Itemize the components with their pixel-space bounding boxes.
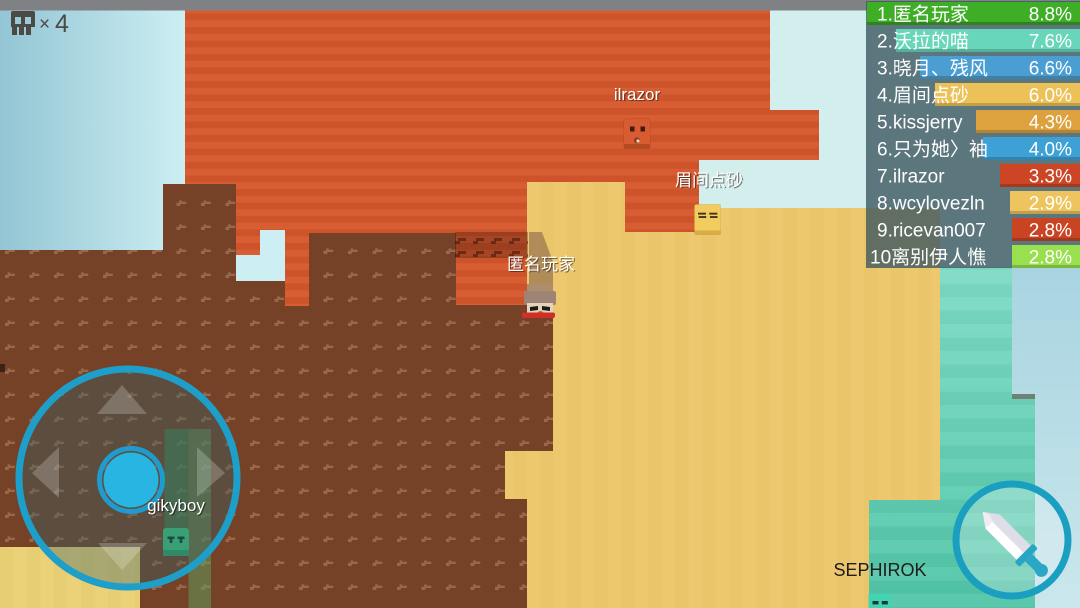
svg-text:×: ×: [39, 14, 50, 35]
svg-text:眉间点砂: 眉间点砂: [675, 171, 743, 190]
svg-text:6.只为她〉袖: 6.只为她〉袖: [877, 139, 988, 161]
svg-text:4.3%: 4.3%: [1029, 113, 1072, 134]
svg-text:10离别伊人憔: 10离别伊人憔: [870, 247, 986, 269]
svg-text:8.wcylovezln: 8.wcylovezln: [877, 194, 985, 215]
svg-text:4: 4: [55, 10, 69, 38]
svg-text:3.3%: 3.3%: [1029, 167, 1072, 188]
svg-text:8.8%: 8.8%: [1029, 5, 1072, 26]
svg-text:SEPHIROK: SEPHIROK: [833, 560, 926, 580]
svg-text:匿名玩家: 匿名玩家: [507, 255, 575, 274]
svg-text:gikyboy: gikyboy: [147, 496, 205, 515]
svg-text:2.8%: 2.8%: [1029, 248, 1072, 269]
svg-text:2.沃拉的喵: 2.沃拉的喵: [877, 31, 969, 53]
svg-text:4.0%: 4.0%: [1029, 140, 1072, 161]
svg-text:3.晓月、残风: 3.晓月、残风: [877, 58, 988, 80]
svg-text:ilrazor: ilrazor: [614, 85, 661, 104]
svg-text:1.匿名玩家: 1.匿名玩家: [877, 4, 969, 26]
svg-text:7.6%: 7.6%: [1029, 32, 1072, 53]
svg-text:7.ilrazor: 7.ilrazor: [877, 167, 945, 188]
svg-text:6.0%: 6.0%: [1029, 86, 1072, 107]
svg-text:2.9%: 2.9%: [1029, 194, 1072, 215]
svg-text:2.8%: 2.8%: [1029, 221, 1072, 242]
svg-text:5.kissjerry: 5.kissjerry: [877, 113, 963, 134]
svg-text:9.ricevan007: 9.ricevan007: [877, 221, 986, 242]
svg-text:4.眉间点砂: 4.眉间点砂: [877, 85, 969, 107]
svg-text:6.6%: 6.6%: [1029, 59, 1072, 80]
